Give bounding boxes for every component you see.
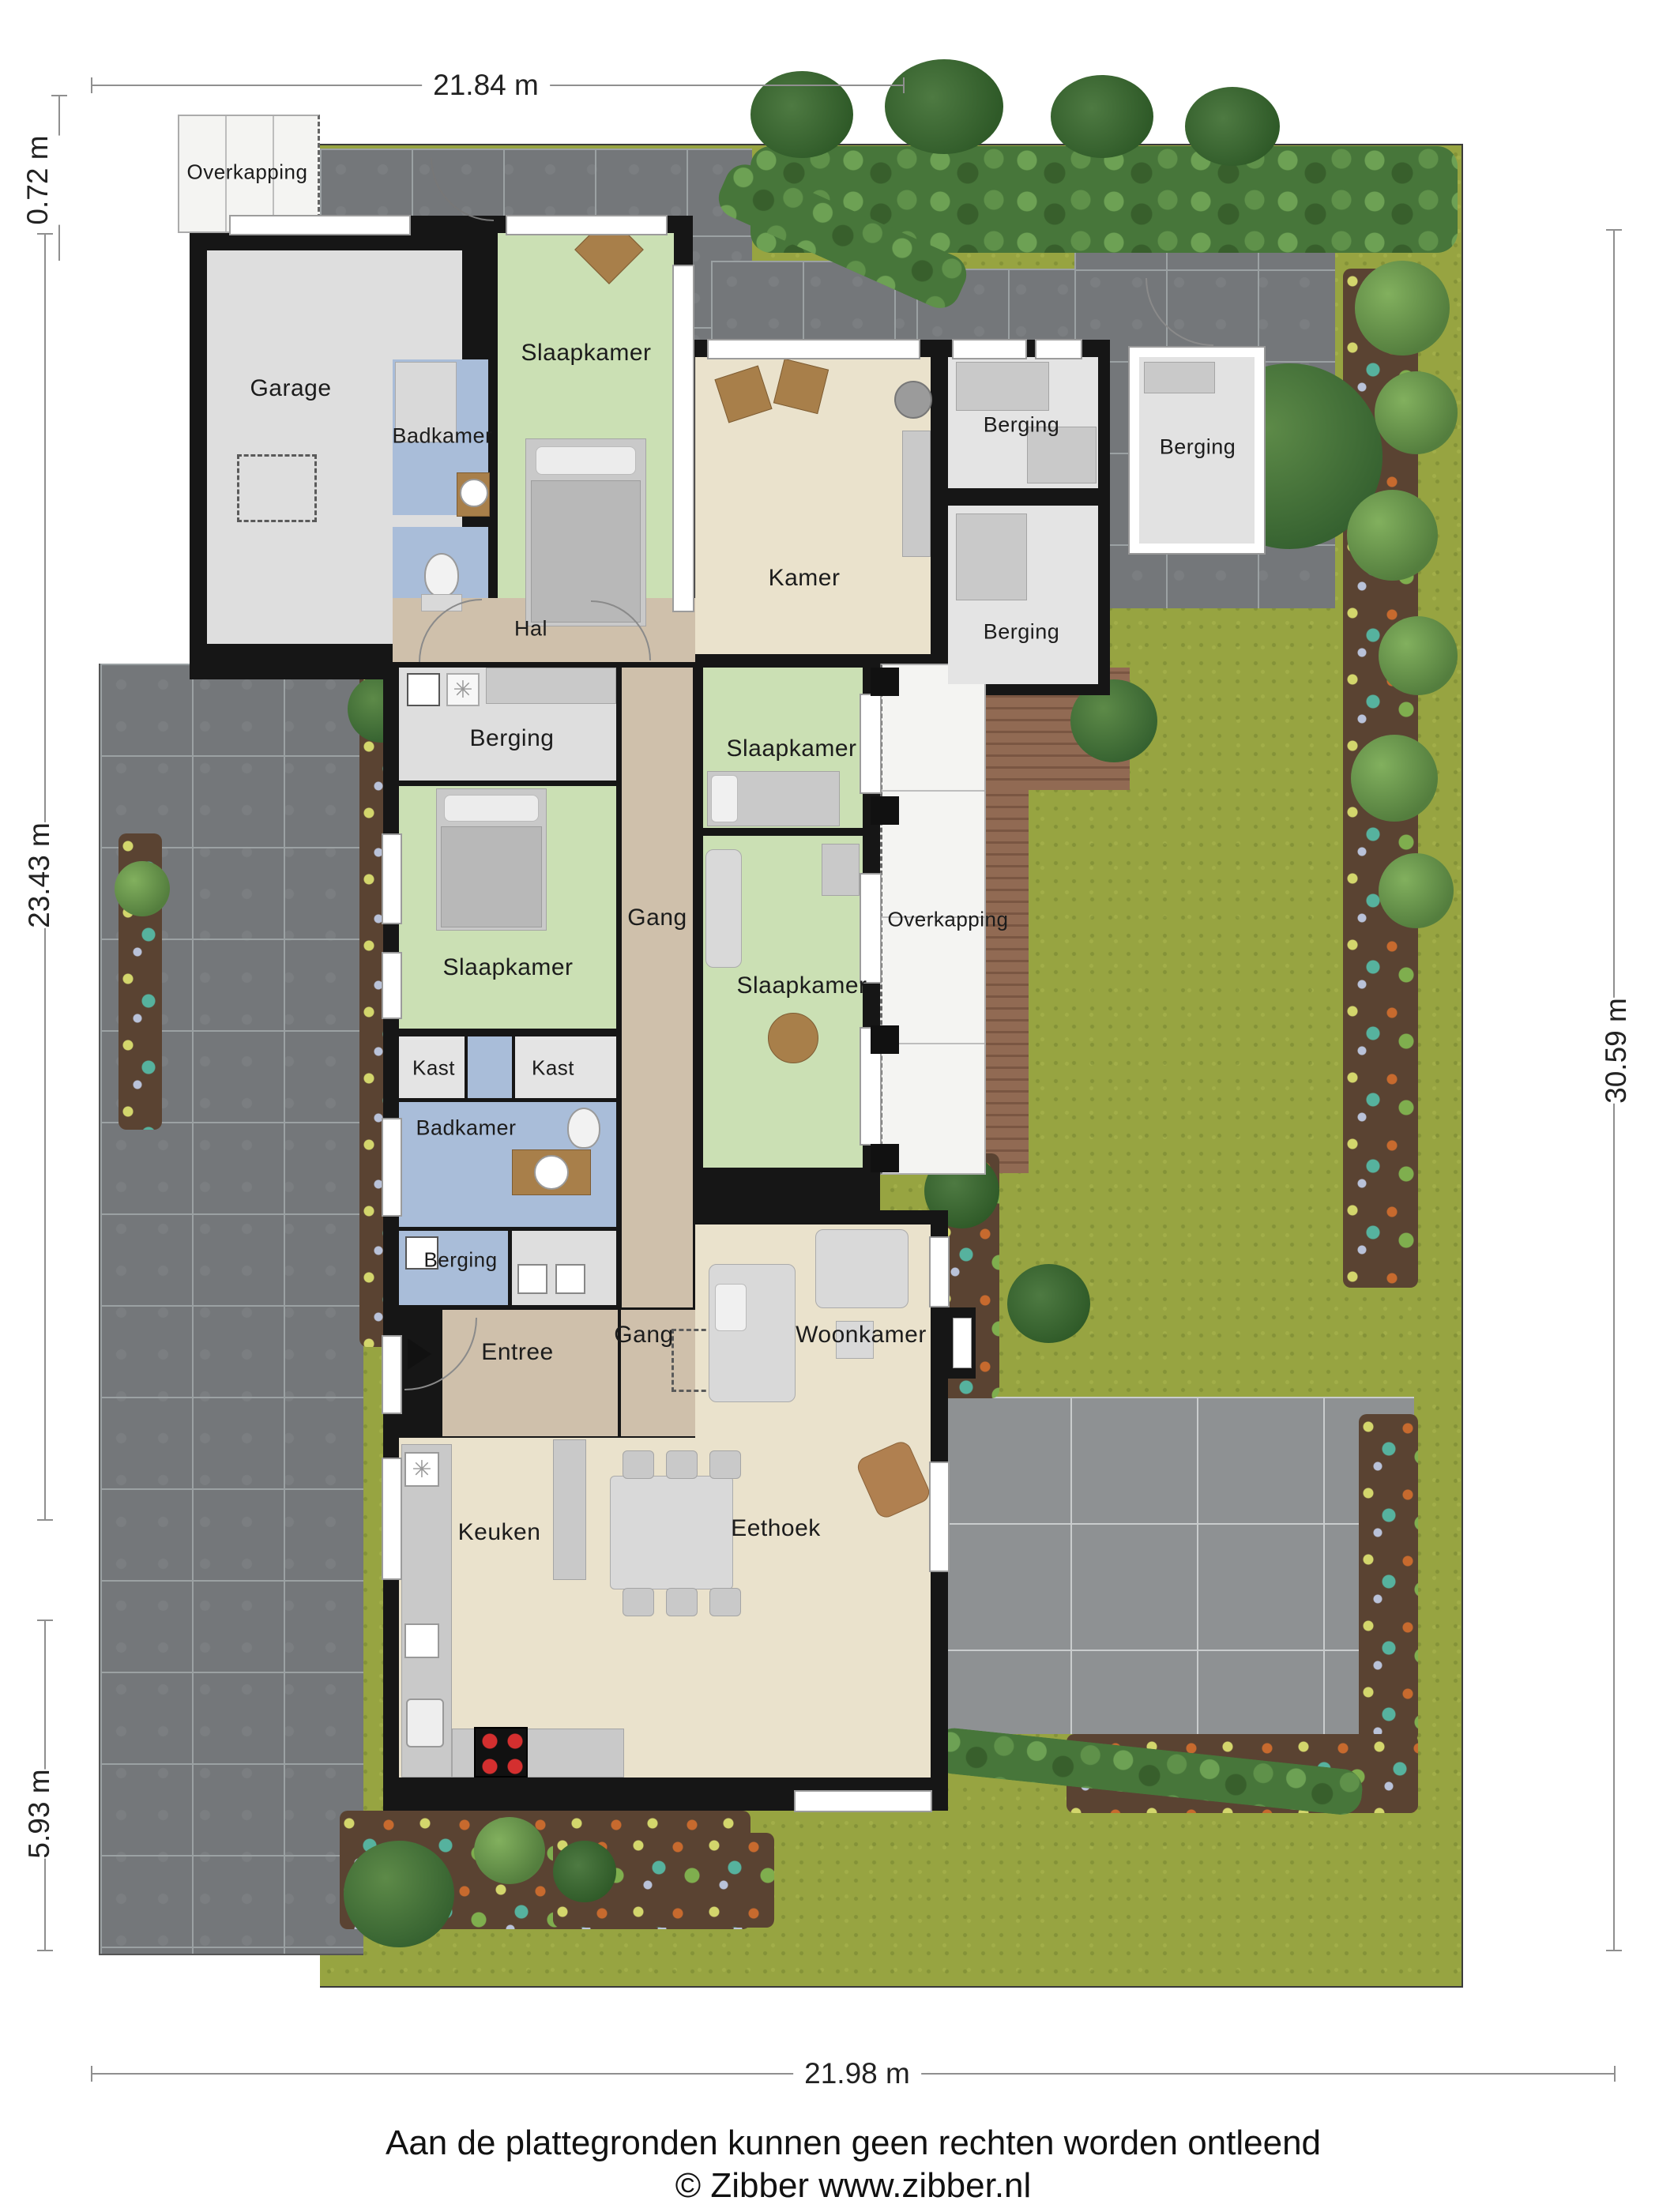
bush-garden-3 — [1347, 490, 1438, 581]
dining-table — [610, 1476, 733, 1589]
berging-shelf-3 — [956, 513, 1027, 600]
tree-top-3 — [1051, 75, 1153, 158]
couch-slaapkamer — [705, 849, 742, 968]
dim-tick-left-bot-a — [37, 1619, 53, 1621]
label-eethoek: Eethoek — [731, 1515, 821, 1542]
chair-1 — [623, 1450, 654, 1479]
label-gang-boven: Gang — [627, 905, 687, 931]
bush-south-2 — [474, 1817, 545, 1884]
shed-shelf — [1144, 362, 1215, 393]
label-badkamer-top: Badkamer — [392, 424, 492, 449]
label-woonkamer: Woonkamer — [796, 1322, 927, 1349]
label-slaapkamer-rechts-onder: Slaapkamer — [736, 972, 867, 999]
tree-top-2 — [885, 59, 1003, 154]
window-badkamer-west — [382, 1118, 402, 1217]
window-woonkamer-east-2 — [929, 1461, 950, 1572]
window-kamer-north — [707, 339, 920, 359]
bush-garden-4 — [1379, 616, 1458, 695]
label-gang-onder: Gang — [614, 1322, 673, 1349]
label-garage: Garage — [250, 375, 331, 402]
chair-3 — [709, 1450, 741, 1479]
fridge-icon: ✳ — [404, 1452, 439, 1487]
fireplace-inner — [953, 1318, 972, 1368]
fan-icon-1: ✳ — [446, 673, 480, 706]
bed-links-pillow — [444, 795, 539, 822]
tree-top-4 — [1185, 87, 1280, 166]
floorplan-page: ✳ ✳ Overkapping Garage Badkamer Slaapkam… — [0, 0, 1659, 2212]
bed-top-pillow — [536, 446, 636, 475]
label-slaapkamer-top: Slaapkamer — [521, 340, 651, 367]
berging-shelf-1 — [956, 362, 1049, 411]
dim-tick-left-top — [51, 95, 67, 96]
window-garage-north — [229, 215, 411, 235]
label-badkamer-midden: Badkamer — [416, 1116, 516, 1141]
bush-south-garden — [344, 1841, 454, 1947]
dim-tick-left-mid-a — [37, 233, 53, 235]
bush-garden-2 — [1375, 371, 1458, 454]
label-slaapkamer-links: Slaapkamer — [442, 954, 573, 981]
round-table-wood — [768, 1013, 818, 1063]
dishwasher-icon — [404, 1623, 439, 1658]
bed-rechts-pillow — [711, 775, 738, 822]
dim-tick-right-b — [1606, 1950, 1622, 1951]
window-woonkamer-east-1 — [929, 1236, 950, 1307]
label-berging-klein: Berging — [423, 1248, 497, 1273]
label-berging-vrijstaand: Berging — [1160, 435, 1236, 460]
washer-icon-1 — [407, 673, 440, 706]
disclaimer-text: Aan de plattegronden kunnen geen rechten… — [386, 2124, 1321, 2163]
dim-tick-top-right — [903, 77, 905, 93]
dim-bottom-label: 21.98 m — [793, 2057, 921, 2090]
label-berging-binnen-onder: Berging — [984, 620, 1060, 645]
border-bed-patio-right — [1359, 1414, 1418, 1742]
palm-3 — [1007, 1264, 1090, 1343]
window-slaapkamer-links-west-2 — [382, 952, 402, 1019]
window-slaapkamer-links-west-1 — [382, 833, 402, 924]
door-eethoek-south — [794, 1790, 932, 1812]
window-slaapkamer-rechts-east-2 — [860, 873, 882, 984]
cabinet-slaapkamer — [822, 844, 860, 896]
window-keuken-west — [382, 1458, 402, 1580]
rear-patio-paving — [944, 1397, 1414, 1734]
sofa-corner — [815, 1229, 908, 1308]
bush-garden-5 — [1351, 735, 1438, 822]
bush-garden-1 — [1355, 261, 1450, 355]
dim-tick-left-mid-b — [37, 1519, 53, 1521]
bush-garden-6 — [1379, 853, 1454, 928]
sink-mid-icon — [534, 1155, 569, 1190]
overkapping-post-3 — [871, 1025, 899, 1054]
chair-5 — [666, 1588, 698, 1616]
dim-tick-bottom-right — [1614, 2066, 1616, 2082]
dim-top-label: 21.84 m — [422, 69, 550, 102]
copyright-text: © Zibber www.zibber.nl — [675, 2166, 1032, 2206]
garage-dashed-storage — [237, 454, 317, 522]
label-kast-links: Kast — [412, 1056, 455, 1081]
door-berging-north — [1035, 339, 1082, 359]
label-kamer: Kamer — [769, 565, 841, 592]
label-berging-midden: Berging — [470, 725, 555, 752]
sofa-main-pillow — [715, 1284, 747, 1331]
label-hal: Hal — [514, 617, 547, 641]
kamer-sideboard — [902, 431, 931, 557]
label-overkapping-midden: Overkapping — [888, 908, 1009, 932]
window-slaapkamer-rechts-east-1 — [860, 694, 882, 794]
toilet-mid-icon — [567, 1108, 600, 1149]
label-entree: Entree — [481, 1339, 553, 1366]
berging-mid-counter — [486, 668, 616, 704]
entrance-arrow-icon — [408, 1338, 431, 1370]
dim-left-bottom-label: 5.93 m — [12, 1769, 67, 1858]
dim-tick-top-left — [91, 77, 92, 93]
appliance-icon-1 — [517, 1264, 547, 1294]
kitchen-peninsula — [553, 1439, 586, 1580]
overkapping-post-1 — [871, 668, 899, 696]
kitchen-sink — [406, 1698, 444, 1747]
dim-tick-left-bot-b — [37, 1950, 53, 1951]
toilet-top-icon — [424, 553, 459, 597]
window-berging-north — [952, 339, 1027, 359]
chair-2 — [666, 1450, 698, 1479]
window-slaapkamer-top-north — [506, 215, 668, 235]
chair-6 — [709, 1588, 741, 1616]
stove-icon — [474, 1727, 528, 1777]
dim-tick-bottom-left — [91, 2066, 92, 2082]
dim-left-mid-label: 23.43 m — [12, 822, 67, 928]
label-keuken: Keuken — [458, 1519, 541, 1546]
bed-top-mattress — [531, 480, 641, 623]
appliance-icon-2 — [555, 1264, 585, 1294]
window-slaapkamer-top-east — [672, 265, 694, 612]
bed-links-mattress — [441, 826, 542, 927]
label-kast-rechts: Kast — [532, 1056, 574, 1081]
room-kast-tussen — [468, 1036, 512, 1098]
overkapping-mid-line-1 — [882, 790, 984, 792]
bush-driveway-border — [115, 861, 170, 916]
dim-tick-right-a — [1606, 229, 1622, 231]
overkapping-post-2 — [871, 796, 899, 825]
label-berging-binnen-boven: Berging — [984, 413, 1060, 438]
sink-top-icon — [460, 479, 488, 507]
chair-4 — [623, 1588, 654, 1616]
dim-left-top-label: 0.72 m — [10, 135, 66, 224]
overkapping-post-4 — [871, 1144, 899, 1172]
dim-right-label: 30.59 m — [1589, 998, 1644, 1104]
bush-south-3 — [553, 1841, 616, 1902]
door-entree-west — [382, 1335, 402, 1414]
kamer-basin-icon — [894, 381, 932, 419]
room-gang-boven — [622, 668, 693, 1307]
label-slaapkamer-rechts-boven: Slaapkamer — [726, 735, 856, 762]
label-overkapping-top: Overkapping — [187, 160, 308, 185]
